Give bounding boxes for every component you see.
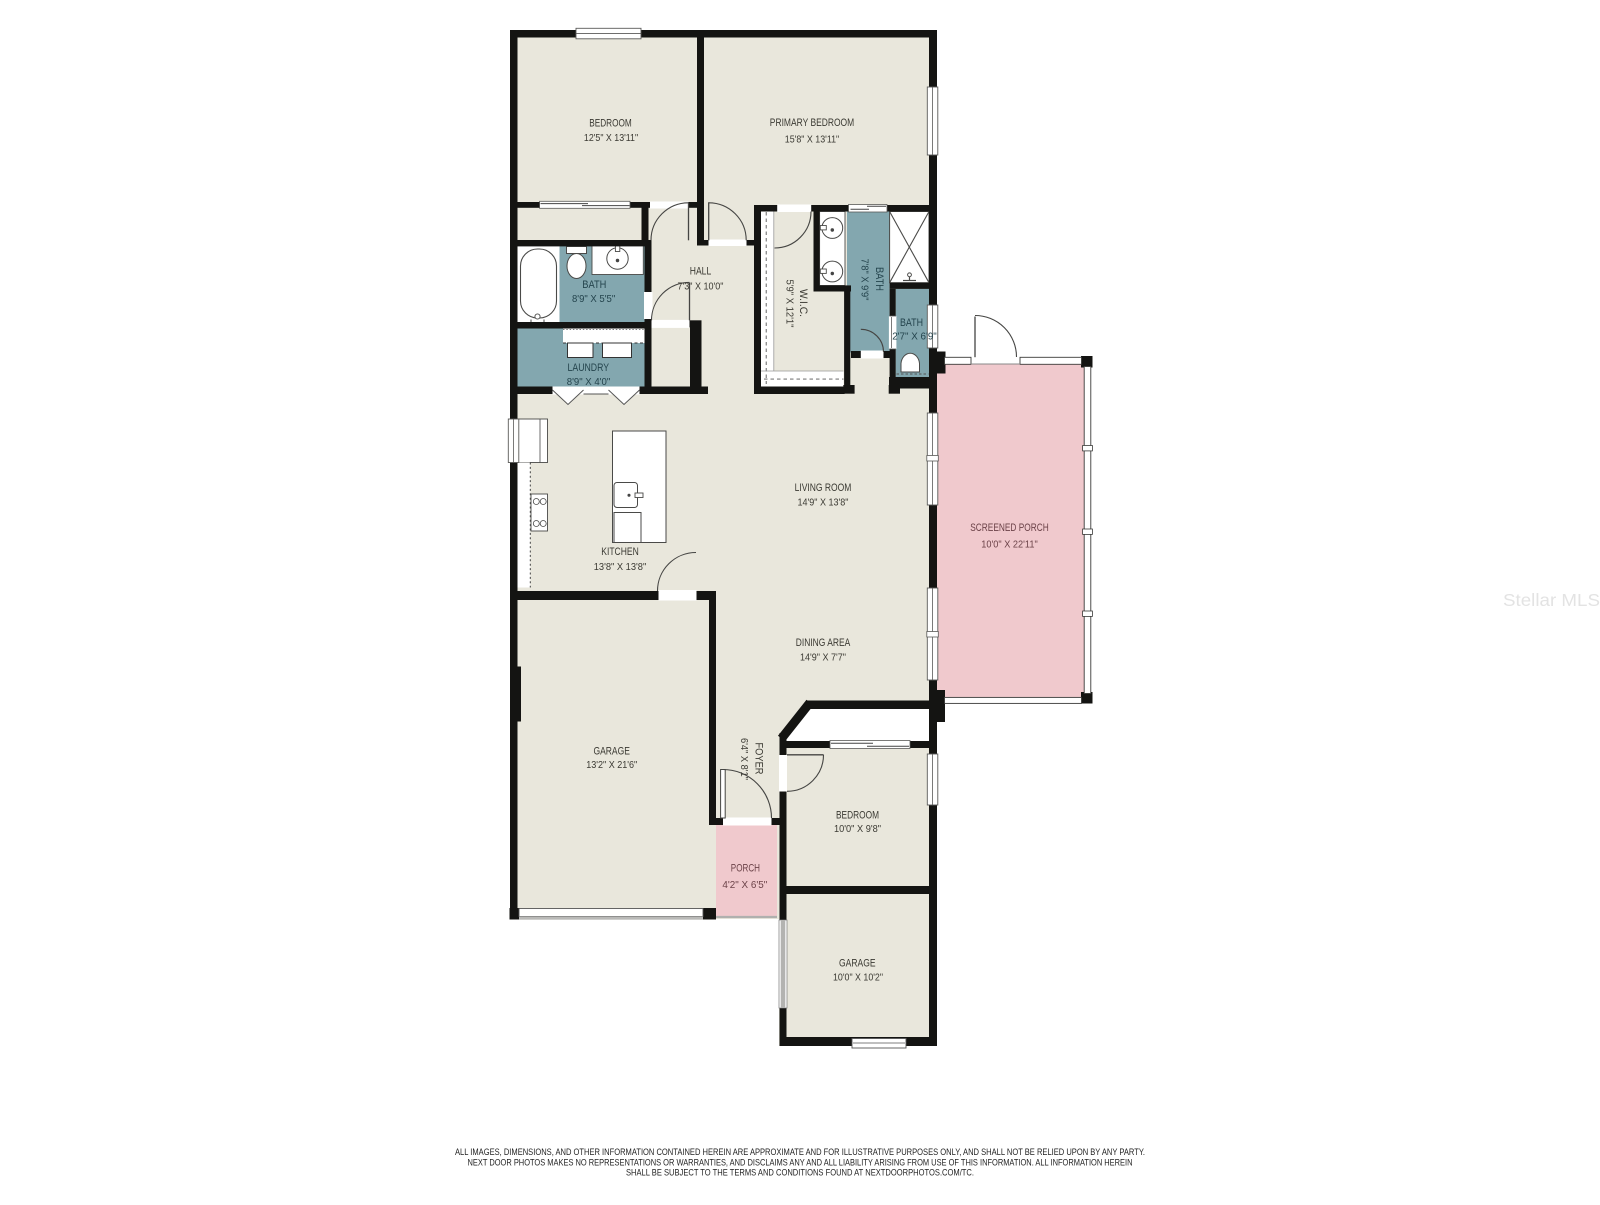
svg-text:10'0" X 10'2": 10'0" X 10'2" (833, 972, 883, 984)
svg-text:14'9" X 13'8": 14'9" X 13'8" (798, 497, 849, 509)
svg-text:LAUNDRY: LAUNDRY (568, 362, 610, 374)
svg-text:DINING AREA: DINING AREA (796, 637, 851, 649)
svg-text:GARAGE: GARAGE (839, 958, 876, 970)
svg-text:15'8" X 13'11": 15'8" X 13'11" (785, 134, 840, 146)
svg-text:SCREENED PORCH: SCREENED PORCH (970, 522, 1049, 534)
svg-text:10'0" X 9'8": 10'0" X 9'8" (834, 823, 881, 835)
svg-text:SHALL BE SUBJECT TO THE TERMS: SHALL BE SUBJECT TO THE TERMS AND CONDIT… (626, 1168, 974, 1179)
svg-text:BEDROOM: BEDROOM (589, 118, 632, 130)
svg-text:BATH: BATH (582, 279, 606, 291)
svg-text:14'9" X 7'7": 14'9" X 7'7" (800, 652, 846, 664)
svg-text:12'5" X 13'11": 12'5" X 13'11" (584, 132, 638, 144)
svg-text:HALL: HALL (690, 266, 712, 278)
svg-text:7'3" X 10'0": 7'3" X 10'0" (678, 280, 724, 292)
svg-text:13'2" X 21'6": 13'2" X 21'6" (586, 759, 637, 771)
svg-text:2'7" X 6'9": 2'7" X 6'9" (892, 330, 937, 342)
svg-text:8'9" X 4'0": 8'9" X 4'0" (567, 376, 611, 388)
svg-text:W.I.C.: W.I.C. (797, 289, 809, 317)
svg-text:PORCH: PORCH (731, 863, 760, 875)
svg-text:LIVING ROOM: LIVING ROOM (795, 482, 852, 494)
svg-text:4'2" X 6'5": 4'2" X 6'5" (722, 879, 767, 891)
svg-text:5'9" X 12'1": 5'9" X 12'1" (784, 280, 796, 328)
svg-text:GARAGE: GARAGE (593, 746, 630, 758)
svg-text:BEDROOM: BEDROOM (836, 810, 879, 822)
svg-text:7'8" X 9'9": 7'8" X 9'9" (859, 259, 871, 301)
svg-text:10'0" X 22'11": 10'0" X 22'11" (981, 539, 1038, 551)
svg-text:Stellar MLS: Stellar MLS (1503, 590, 1600, 610)
svg-text:BATH: BATH (873, 267, 885, 291)
svg-text:13'8" X 13'8": 13'8" X 13'8" (594, 561, 647, 573)
svg-text:6'4" X 8'1": 6'4" X 8'1" (738, 738, 750, 780)
svg-text:BATH: BATH (900, 317, 923, 329)
svg-text:KITCHEN: KITCHEN (601, 546, 639, 558)
svg-text:PRIMARY BEDROOM: PRIMARY BEDROOM (770, 117, 854, 129)
svg-text:FOYER: FOYER (753, 743, 765, 775)
svg-text:8'9" X 5'5": 8'9" X 5'5" (572, 293, 616, 305)
